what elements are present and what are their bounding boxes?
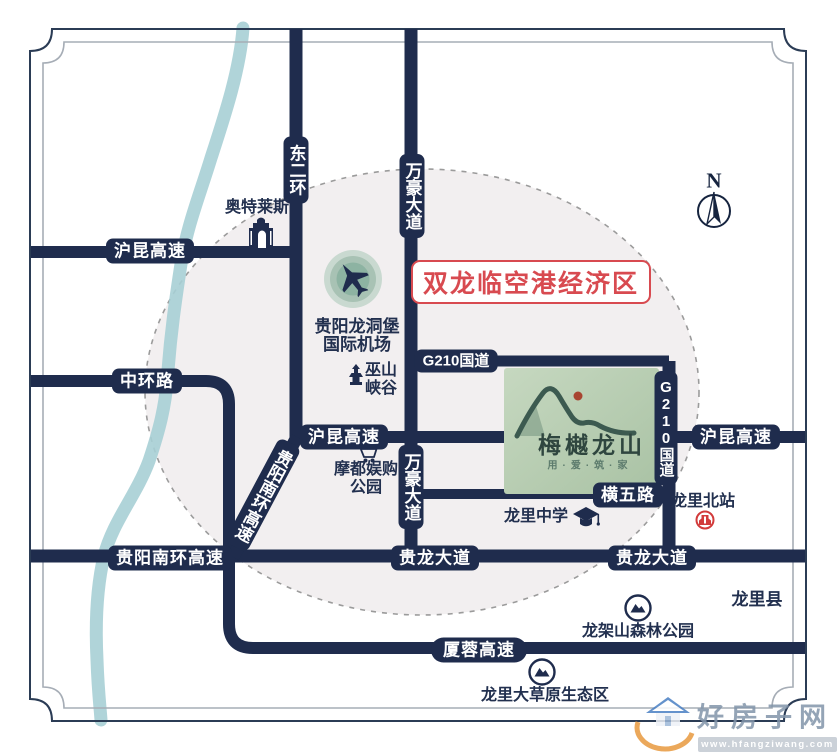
road-label-dongerhuan: 东二环 bbox=[284, 137, 309, 204]
landmark-wushan-line1: 巫山 bbox=[365, 362, 397, 380]
road-label-wanhao-top: 万豪大道 bbox=[400, 154, 425, 238]
railway-station-icon bbox=[697, 512, 714, 529]
landmark-grassland: 龙里大草原生态区 bbox=[481, 687, 609, 705]
road-label-hukun-mid: 沪昆高速 bbox=[300, 425, 388, 450]
landmark-modu-line2: 公园 bbox=[350, 479, 382, 497]
sun-dot bbox=[574, 392, 583, 401]
watermark-site-name: 好房子网 bbox=[697, 696, 833, 735]
road-label-wanhao-mid: 万豪大道 bbox=[399, 445, 424, 529]
watermark-site-url: www.hfangziwang.com bbox=[701, 739, 834, 750]
landmark-station: 龙里北站 bbox=[671, 493, 735, 511]
compass-north-label: N bbox=[706, 169, 721, 194]
compass-icon bbox=[698, 192, 730, 227]
landmark-county: 龙里县 bbox=[732, 590, 783, 610]
landmark-outlets: 奥特莱斯 bbox=[225, 199, 289, 217]
landmark-wushan-line2: 峡谷 bbox=[365, 380, 397, 398]
watermark-house-icon bbox=[637, 697, 692, 749]
airport-icon bbox=[324, 250, 382, 308]
road-label-zhonghuan: 中环路 bbox=[112, 369, 182, 394]
project-slogan: 用·爱·筑·家 bbox=[548, 457, 633, 472]
road-label-guilong-right: 贵龙大道 bbox=[608, 546, 696, 571]
road-label-g210-vertical: G210国道 bbox=[655, 371, 678, 485]
landmark-modu-line1: 摩都娱购 bbox=[334, 461, 398, 479]
road-label-g210-horizontal: G210国道 bbox=[415, 350, 498, 373]
landmark-school: 龙里中学 bbox=[504, 508, 568, 526]
road-label-hukun-right: 沪昆高速 bbox=[692, 425, 780, 450]
landmark-airport-line1: 贵阳龙洞堡 bbox=[315, 317, 400, 337]
road-label-guilong-left: 贵龙大道 bbox=[391, 546, 479, 571]
location-map: 沪昆高速 中环路 东二环 万豪大道 G210国道 沪昆高速 沪昆高速 G210国… bbox=[0, 0, 839, 752]
landmark-airport-line2: 国际机场 bbox=[323, 335, 391, 355]
project-name: 梅樾龙山 bbox=[538, 426, 646, 460]
road-label-xiarong: 厦蓉高速 bbox=[431, 638, 527, 663]
landmark-forest-park: 龙架山森林公园 bbox=[582, 623, 694, 641]
economic-zone-label: 双龙临空港经济区 bbox=[411, 260, 651, 304]
road-label-hukun-top: 沪昆高速 bbox=[106, 239, 194, 264]
forest-park-icon bbox=[626, 596, 651, 621]
watermark-url-bar: www.hfangziwang.com bbox=[698, 737, 837, 752]
road-label-nanhuan-horizontal: 贵阳南环高速 bbox=[108, 546, 232, 571]
road-label-hengwu: 横五路 bbox=[593, 483, 663, 508]
grassland-icon bbox=[530, 660, 555, 685]
